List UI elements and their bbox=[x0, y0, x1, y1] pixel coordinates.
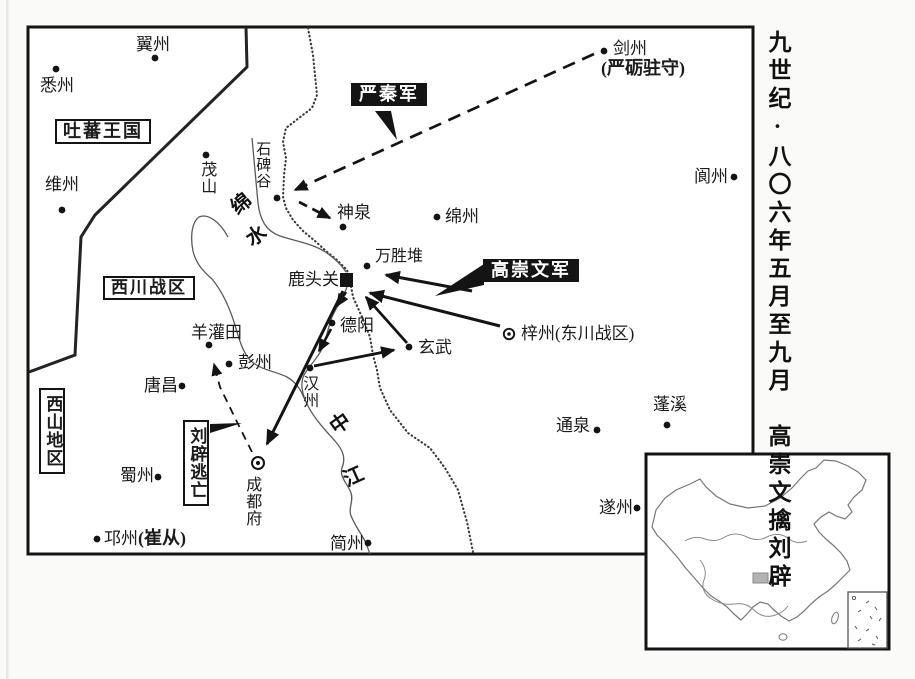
army-label-gaochongwen: 高崇文军 bbox=[483, 259, 579, 282]
place-label-weizhou: 维州 bbox=[45, 176, 79, 194]
place-label-jianzhou-south: 简州 bbox=[330, 535, 364, 553]
place-label-xuanwu: 玄武 bbox=[418, 339, 452, 357]
place-label-yizhou: 翼州 bbox=[136, 36, 170, 54]
place-label-langzhou: 阆州 bbox=[694, 168, 728, 186]
dot-jianzhou bbox=[601, 48, 608, 55]
south-china-sea-inset bbox=[848, 592, 887, 648]
dot-mianzhou bbox=[434, 214, 441, 221]
dot-jianzhou-south bbox=[365, 540, 372, 547]
lutouguan-fort-square bbox=[340, 273, 353, 287]
place-label-pengxi: 蓬溪 bbox=[653, 396, 687, 414]
place-label-tangchang: 唐昌 bbox=[144, 377, 178, 395]
callout-liupi-escape: 刘辟逃亡 bbox=[183, 420, 209, 506]
dot-yizhou bbox=[152, 55, 159, 62]
place-label-tongquan: 通泉 bbox=[556, 417, 590, 435]
region-box-xishan: 西山地区 bbox=[39, 388, 65, 474]
place-label-zizhou: 梓州(东川战区) bbox=[521, 325, 634, 343]
dot-qiongzhou bbox=[94, 536, 101, 543]
dot-yangguantian bbox=[206, 342, 213, 349]
place-label-qiongzhou: 邛州(崔从) bbox=[104, 529, 186, 548]
place-label-jianzhou: 剑州 bbox=[613, 40, 647, 58]
place-label-xizhou: 悉州 bbox=[40, 77, 74, 95]
dot-shuzhou bbox=[155, 474, 162, 481]
dot-hanzhou bbox=[307, 365, 314, 372]
dot-shenquan bbox=[340, 224, 347, 231]
place-label-deyang: 德阳 bbox=[340, 317, 374, 335]
valley-label-shibeigu: 石碑谷 bbox=[254, 141, 270, 189]
place-label-pengzhou: 彭州 bbox=[238, 354, 272, 372]
qiongzhou-name: 邛州 bbox=[104, 529, 138, 548]
place-label-mianzhou: 绵州 bbox=[445, 208, 479, 226]
place-label-wanshengdui: 万胜堆 bbox=[375, 248, 423, 265]
dot-shibeigu bbox=[274, 195, 281, 202]
dot-xuanwu bbox=[406, 344, 413, 351]
army-label-yanqin: 严秦军 bbox=[351, 83, 427, 106]
zizhou-inner-dot bbox=[507, 332, 511, 336]
place-label-shenquan: 神泉 bbox=[337, 204, 371, 222]
page-edge-shadow bbox=[6, 0, 9, 679]
dot-deyang bbox=[329, 320, 336, 327]
region-box-tubo: 吐蕃王国 bbox=[55, 119, 151, 144]
place-note-jianzhou: (严砺驻守) bbox=[601, 59, 685, 78]
dot-maoshan bbox=[203, 152, 210, 159]
qiongzhou-note: (崔从) bbox=[138, 528, 186, 548]
dot-langzhou bbox=[731, 174, 738, 181]
dot-wanshengdui bbox=[364, 263, 371, 270]
region-box-xichuan: 西川战区 bbox=[103, 276, 195, 300]
dot-weizhou bbox=[59, 207, 66, 214]
dot-tongquan bbox=[594, 427, 601, 434]
place-label-lutouguan: 鹿头关 bbox=[288, 271, 339, 289]
dot-pengzhou bbox=[226, 361, 233, 368]
chengdufu-inner-dot bbox=[256, 461, 260, 465]
place-label-chengdufu: 成都府 bbox=[243, 476, 260, 527]
place-label-shuzhou: 蜀州 bbox=[120, 467, 154, 485]
place-label-maoshan: 茂山 bbox=[198, 161, 215, 195]
map-caption-vertical: 九世纪·八〇六年五月至九月 高崇文擒刘辟 bbox=[760, 30, 794, 648]
map-page: 九世纪·八〇六年五月至九月 高崇文擒刘辟 吐蕃王国 西川战区 西山地区 严秦军 … bbox=[0, 0, 915, 679]
dot-suizhou bbox=[634, 505, 641, 512]
dot-tangchang bbox=[179, 383, 186, 390]
place-label-yangguantian: 羊灌田 bbox=[191, 324, 242, 342]
dot-pengxi bbox=[664, 422, 671, 429]
place-label-hanzhou: 汉州 bbox=[300, 375, 317, 409]
dot-xizhou bbox=[53, 66, 60, 73]
place-label-suizhou: 遂州 bbox=[599, 499, 633, 517]
